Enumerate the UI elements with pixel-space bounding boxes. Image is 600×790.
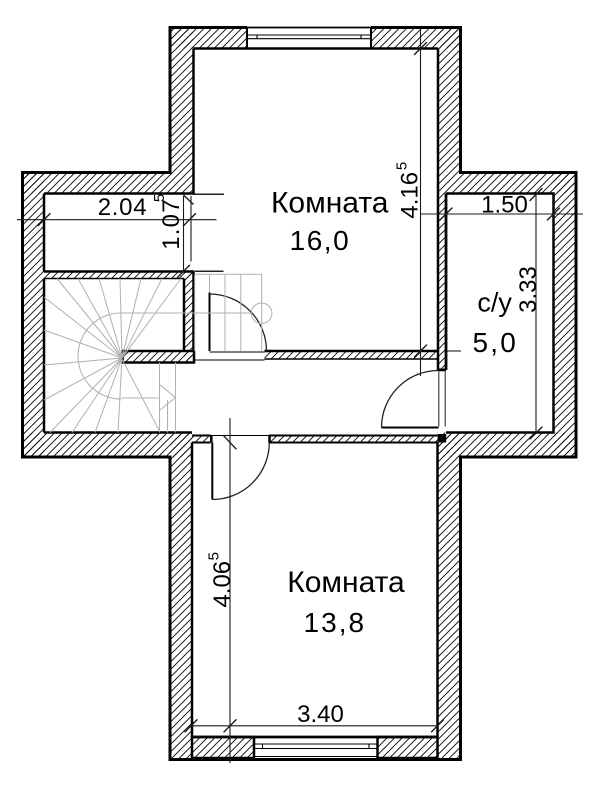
svg-text:5: 5 bbox=[205, 552, 222, 560]
svg-text:5: 5 bbox=[151, 194, 168, 202]
svg-text:4.16: 4.16 bbox=[397, 172, 424, 219]
svg-text:2.04: 2.04 bbox=[98, 194, 148, 221]
svg-text:4.06: 4.06 bbox=[209, 561, 236, 608]
svg-text:Комната: Комната bbox=[287, 566, 405, 599]
svg-text:1.07: 1.07 bbox=[158, 198, 185, 250]
svg-text:1.50: 1.50 bbox=[481, 192, 528, 219]
svg-text:Комната: Комната bbox=[271, 187, 389, 220]
svg-text:3.40: 3.40 bbox=[297, 701, 344, 728]
svg-text:с/у: с/у bbox=[477, 288, 512, 318]
svg-text:5: 5 bbox=[394, 162, 411, 170]
svg-text:16,0: 16,0 bbox=[290, 225, 351, 256]
svg-text:13,8: 13,8 bbox=[304, 607, 367, 638]
svg-text:3.33: 3.33 bbox=[515, 266, 542, 313]
svg-text:5,0: 5,0 bbox=[473, 327, 519, 358]
